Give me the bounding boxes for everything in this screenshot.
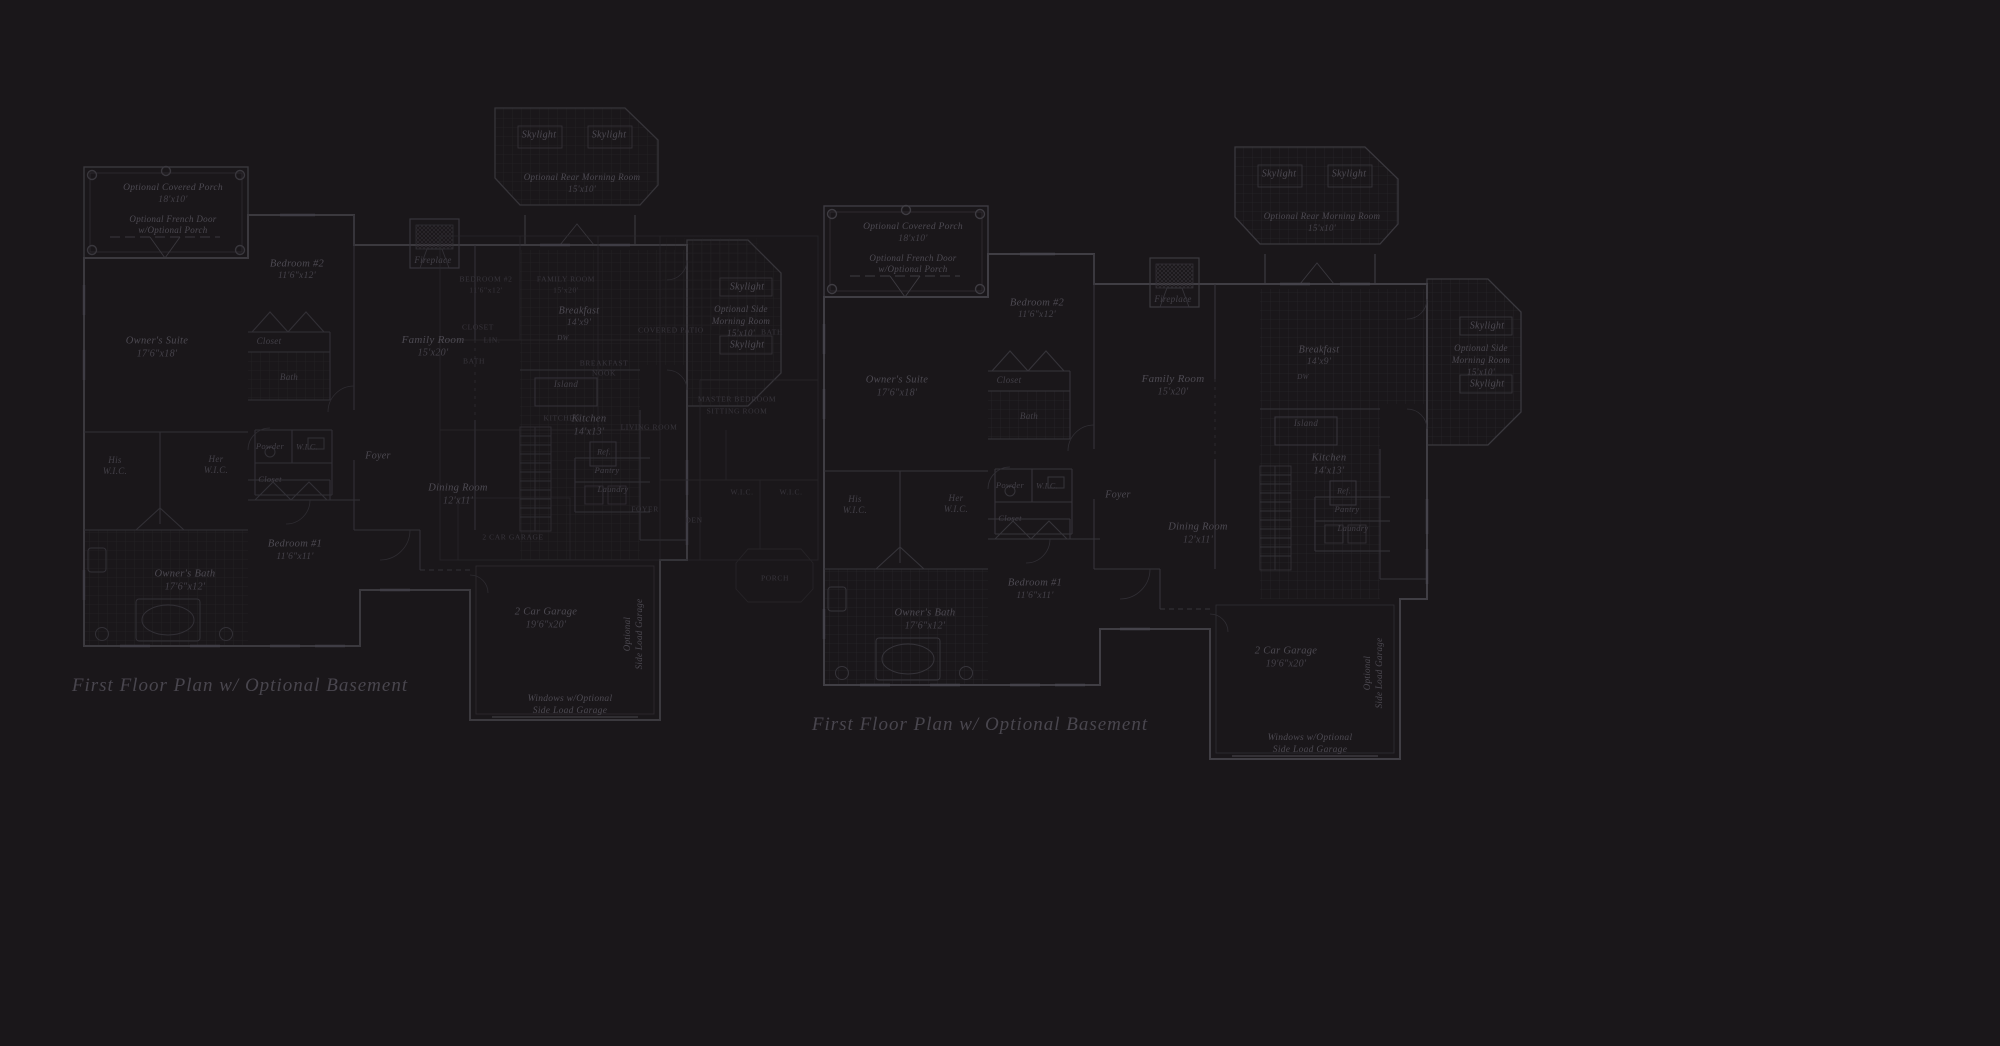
right-plan-geometry	[824, 147, 1521, 759]
floor-plan-drawing	[0, 0, 2000, 1046]
floor-plan-page: Optional Covered Porch18'x10'Optional Fr…	[0, 0, 2000, 1046]
left-plan-geometry	[84, 108, 781, 720]
